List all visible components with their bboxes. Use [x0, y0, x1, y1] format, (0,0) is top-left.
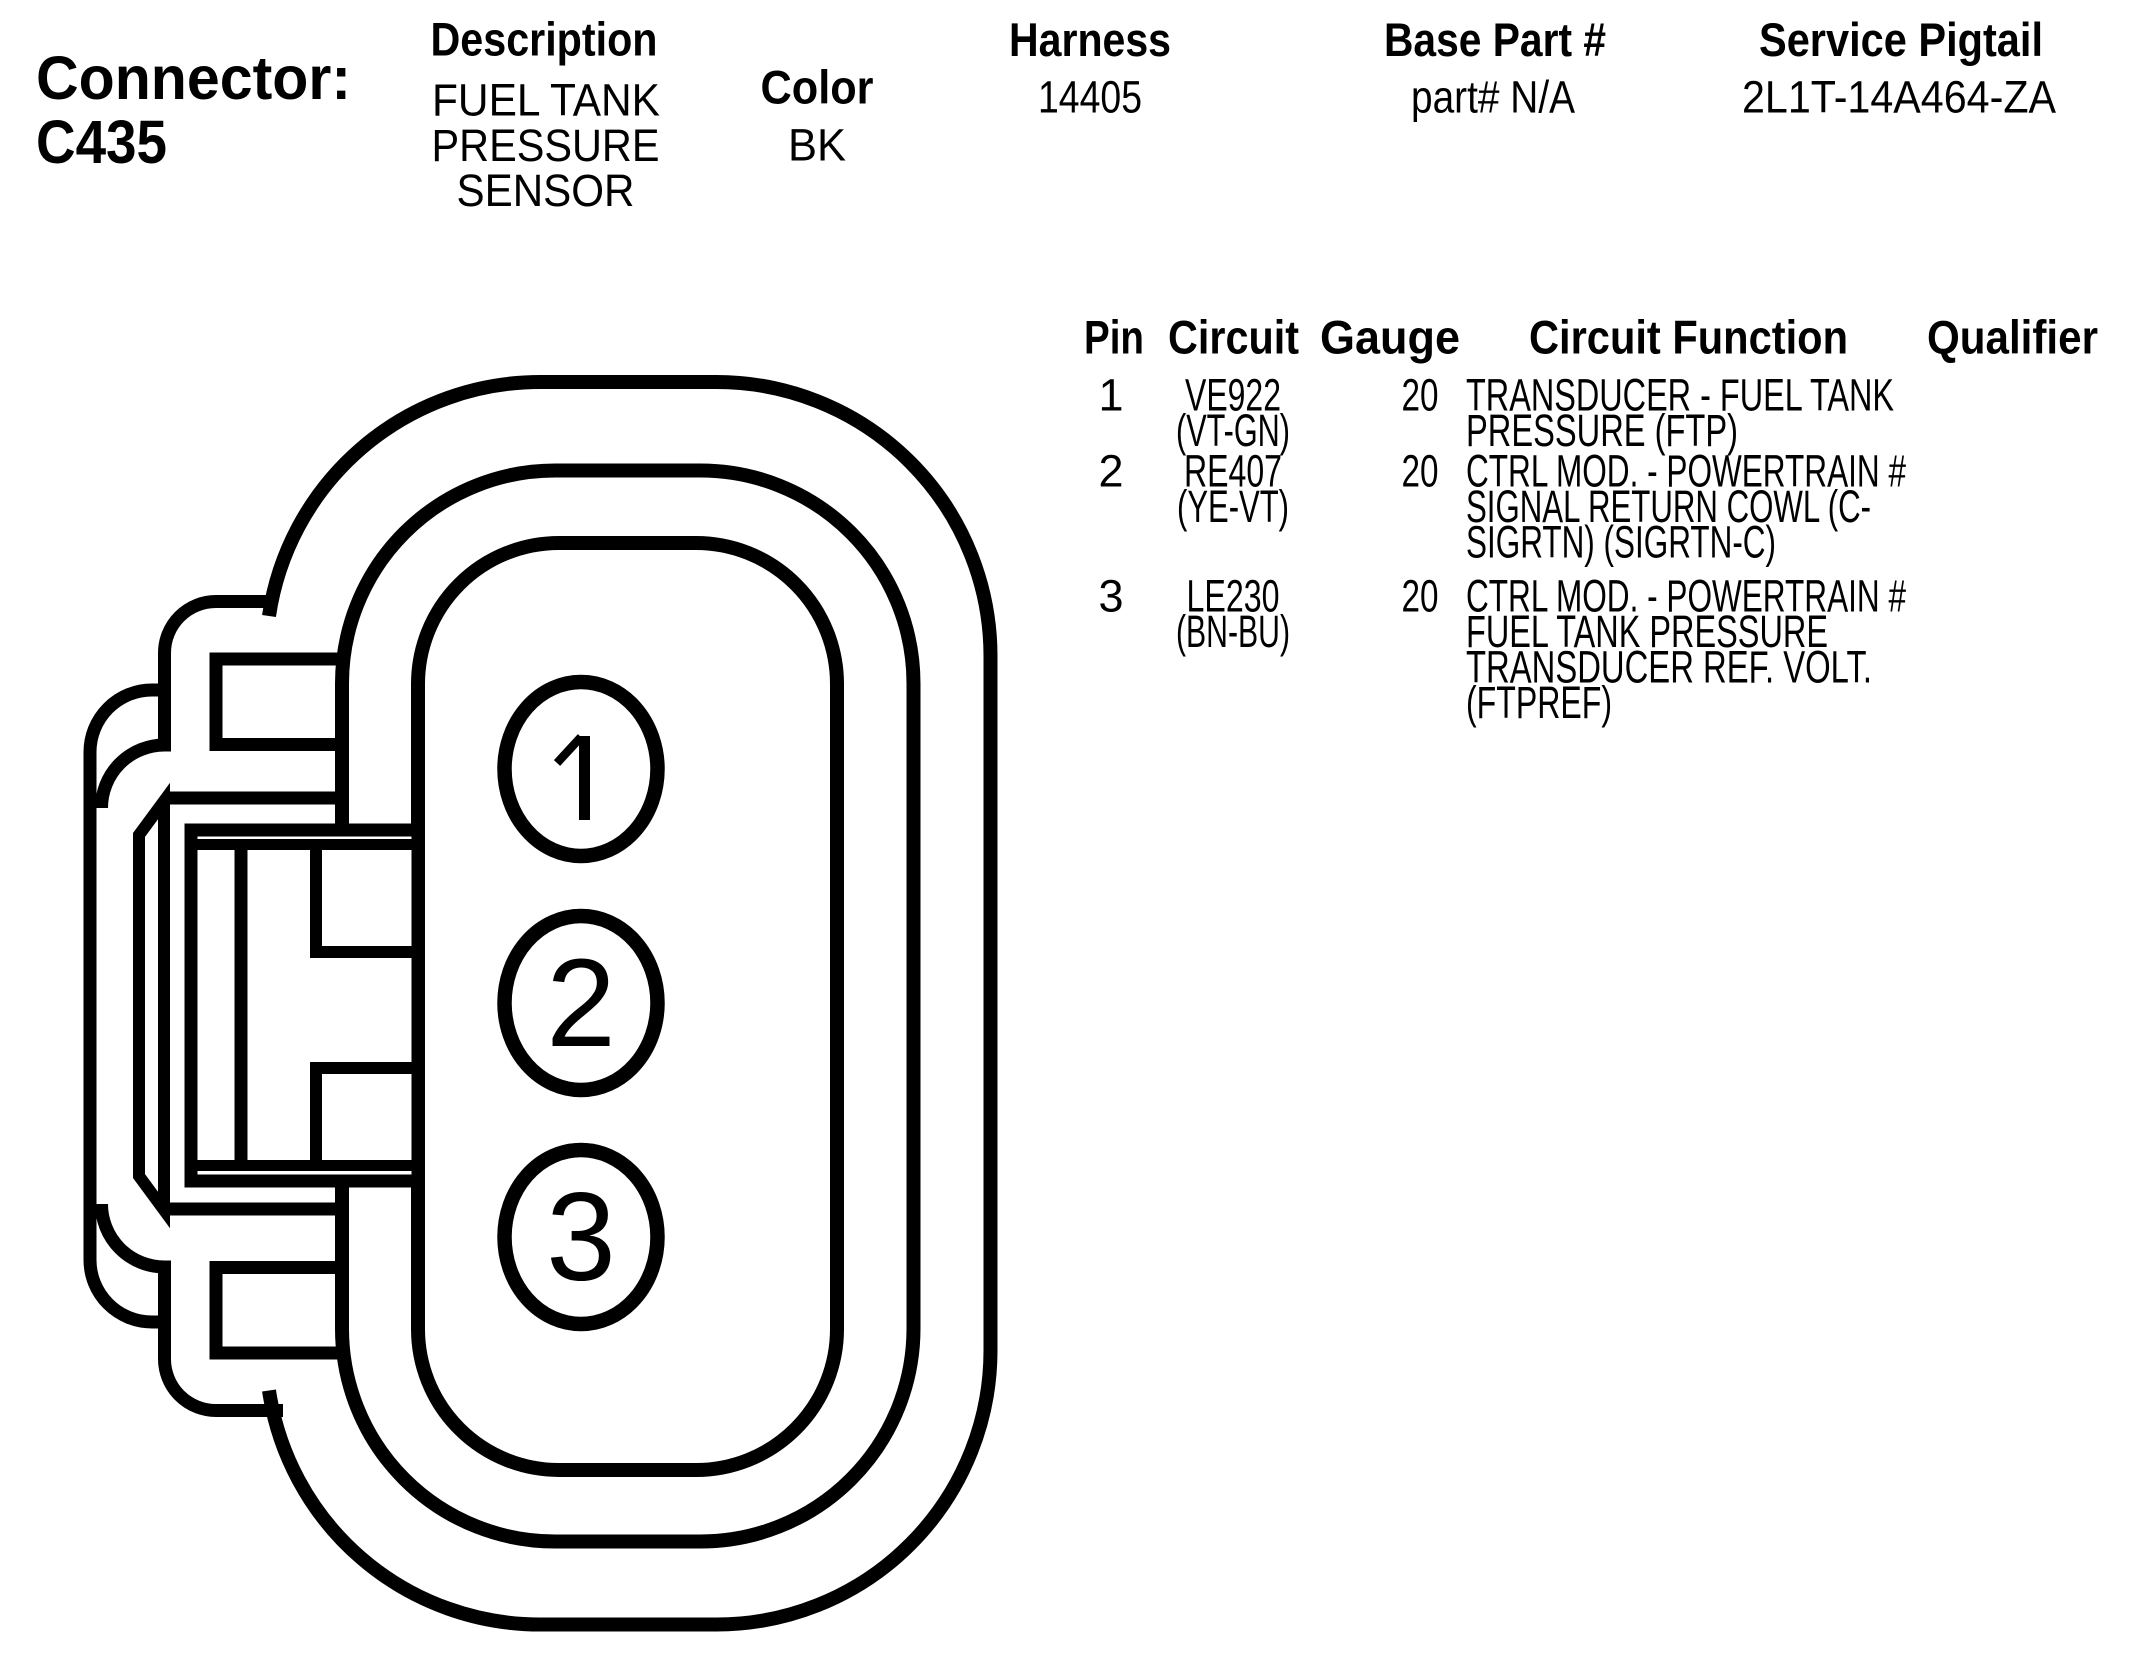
svg-text:Color: Color — [761, 61, 874, 114]
svg-text:SENSOR: SENSOR — [457, 165, 635, 216]
svg-text:20: 20 — [1402, 571, 1439, 622]
svg-text:FUEL TANK: FUEL TANK — [432, 75, 660, 126]
svg-text:1: 1 — [1098, 370, 1123, 421]
svg-text:2: 2 — [1098, 446, 1123, 497]
svg-text:20: 20 — [1402, 446, 1439, 497]
svg-text:part# N/A: part# N/A — [1411, 72, 1576, 123]
svg-text:(BN-BU): (BN-BU) — [1176, 606, 1290, 657]
svg-text:(YE-VT): (YE-VT) — [1177, 481, 1289, 532]
svg-text:(FTPREF): (FTPREF) — [1466, 677, 1612, 728]
svg-text:Gauge: Gauge — [1320, 311, 1460, 364]
svg-text:Pin: Pin — [1084, 311, 1144, 364]
svg-text:Base Part #: Base Part # — [1384, 13, 1606, 66]
svg-text:20: 20 — [1402, 370, 1439, 421]
svg-text:Circuit: Circuit — [1168, 311, 1299, 364]
svg-text:SIGRTN) (SIGRTN-C): SIGRTN) (SIGRTN-C) — [1466, 517, 1776, 568]
svg-text:2L1T-14A464-ZA: 2L1T-14A464-ZA — [1742, 72, 2057, 123]
svg-text:Service Pigtail: Service Pigtail — [1759, 13, 2043, 66]
svg-text:Circuit Function: Circuit Function — [1529, 311, 1848, 364]
svg-text:Harness: Harness — [1009, 13, 1171, 66]
svg-text:BK: BK — [788, 120, 846, 171]
svg-text:Qualifier: Qualifier — [1927, 311, 2098, 364]
svg-text:Description: Description — [431, 13, 658, 66]
svg-text:3: 3 — [1098, 571, 1123, 622]
svg-text:PRESSURE: PRESSURE — [432, 120, 660, 171]
svg-text:C435: C435 — [36, 108, 167, 176]
svg-text:3: 3 — [546, 1168, 616, 1307]
svg-text:Connector:: Connector: — [36, 44, 351, 112]
svg-text:2: 2 — [546, 934, 616, 1073]
svg-text:14405: 14405 — [1038, 72, 1142, 123]
